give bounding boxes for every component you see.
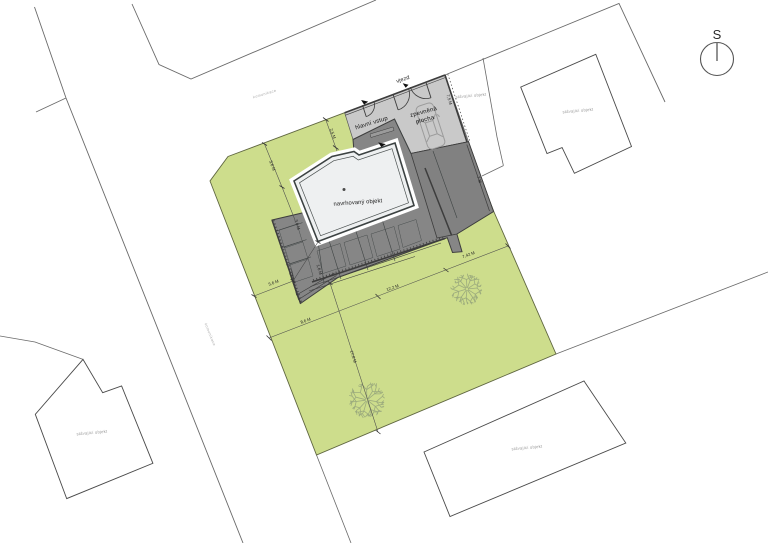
svg-text:komunikace: komunikace xyxy=(253,89,277,100)
svg-text:S: S xyxy=(713,27,722,42)
svg-text:stávající objekt: stávající objekt xyxy=(455,92,487,100)
svg-text:komunikace: komunikace xyxy=(204,323,217,347)
